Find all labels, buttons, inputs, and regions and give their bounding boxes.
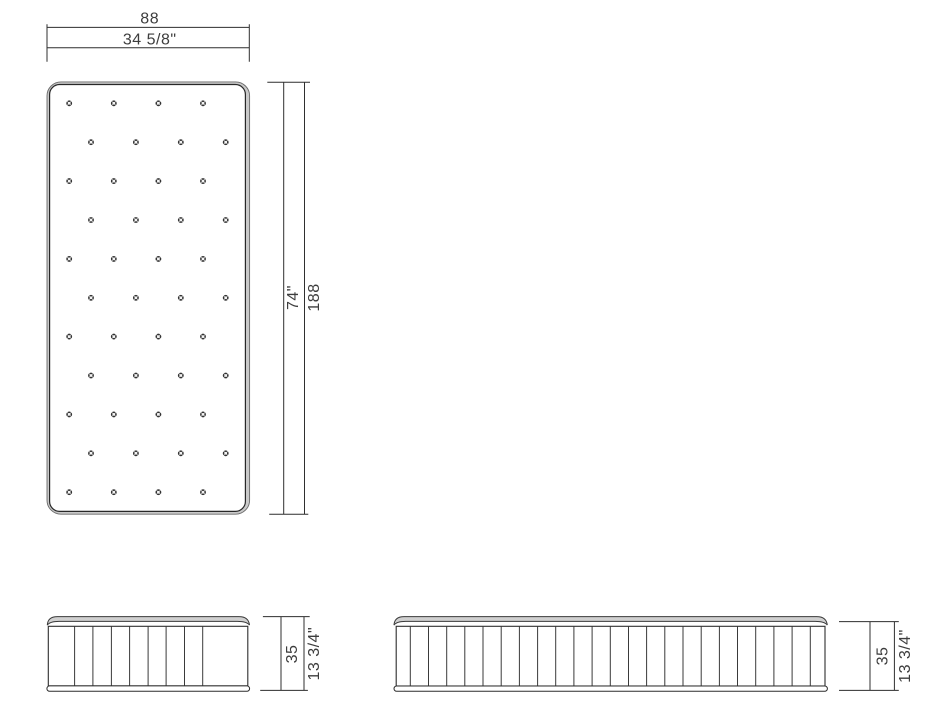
svg-text:35: 35 [284,645,301,664]
svg-text:188: 188 [306,283,323,311]
svg-text:13 3/4": 13 3/4" [897,629,914,683]
svg-text:88: 88 [140,10,159,27]
svg-text:13 3/4": 13 3/4" [306,627,323,681]
svg-text:35: 35 [875,647,892,666]
svg-text:74": 74" [285,285,302,310]
svg-text:34 5/8": 34 5/8" [123,31,177,48]
